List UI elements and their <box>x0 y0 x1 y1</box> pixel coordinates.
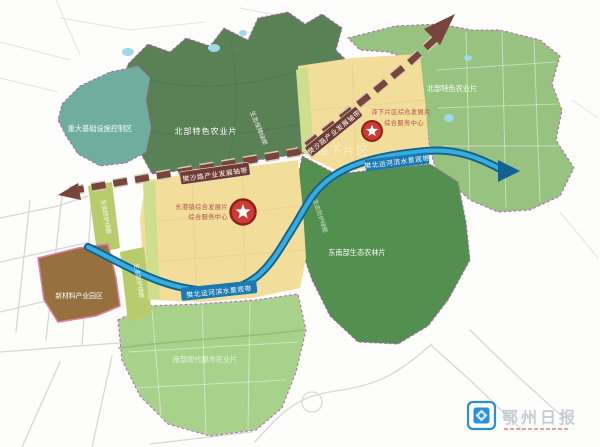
svg-text:泽下片区综合发展片: 泽下片区综合发展片 <box>371 107 430 116</box>
watermark-logo-icon <box>468 402 495 429</box>
star-icon-east <box>362 121 382 141</box>
label-southeast-agri: 东南部生态农林片 <box>328 248 386 257</box>
planning-map: 重大基础设施控制区 北部特色农业片 北部特色农业片 生态保障绿楔 生态防护绿廊 … <box>0 0 600 447</box>
star-icon-central <box>231 200 256 225</box>
label-infra-control: 重大基础设施控制区 <box>68 124 133 133</box>
svg-text:综合服务中心: 综合服务中心 <box>384 118 424 127</box>
svg-text:长港镇综合发展片: 长港镇综合发展片 <box>175 202 228 211</box>
region-infrastructure-control <box>58 66 151 166</box>
label-north-agri-east: 北部特色农业片 <box>427 84 477 93</box>
map-canvas: 重大基础设施控制区 北部特色农业片 北部特色农业片 生态保障绿楔 生态防护绿廊 … <box>0 0 600 447</box>
svg-text:综合服务中心: 综合服务中心 <box>188 212 228 221</box>
label-south-agri: 南部现代都市农业片 <box>173 355 238 364</box>
label-north-agri-west: 北部特色农业片 <box>175 126 238 136</box>
watermark-text: 鄂州日报 <box>502 408 578 427</box>
watermark: 鄂州日报 <box>468 402 578 429</box>
label-new-material-park: 新材料产业园区 <box>55 291 103 300</box>
